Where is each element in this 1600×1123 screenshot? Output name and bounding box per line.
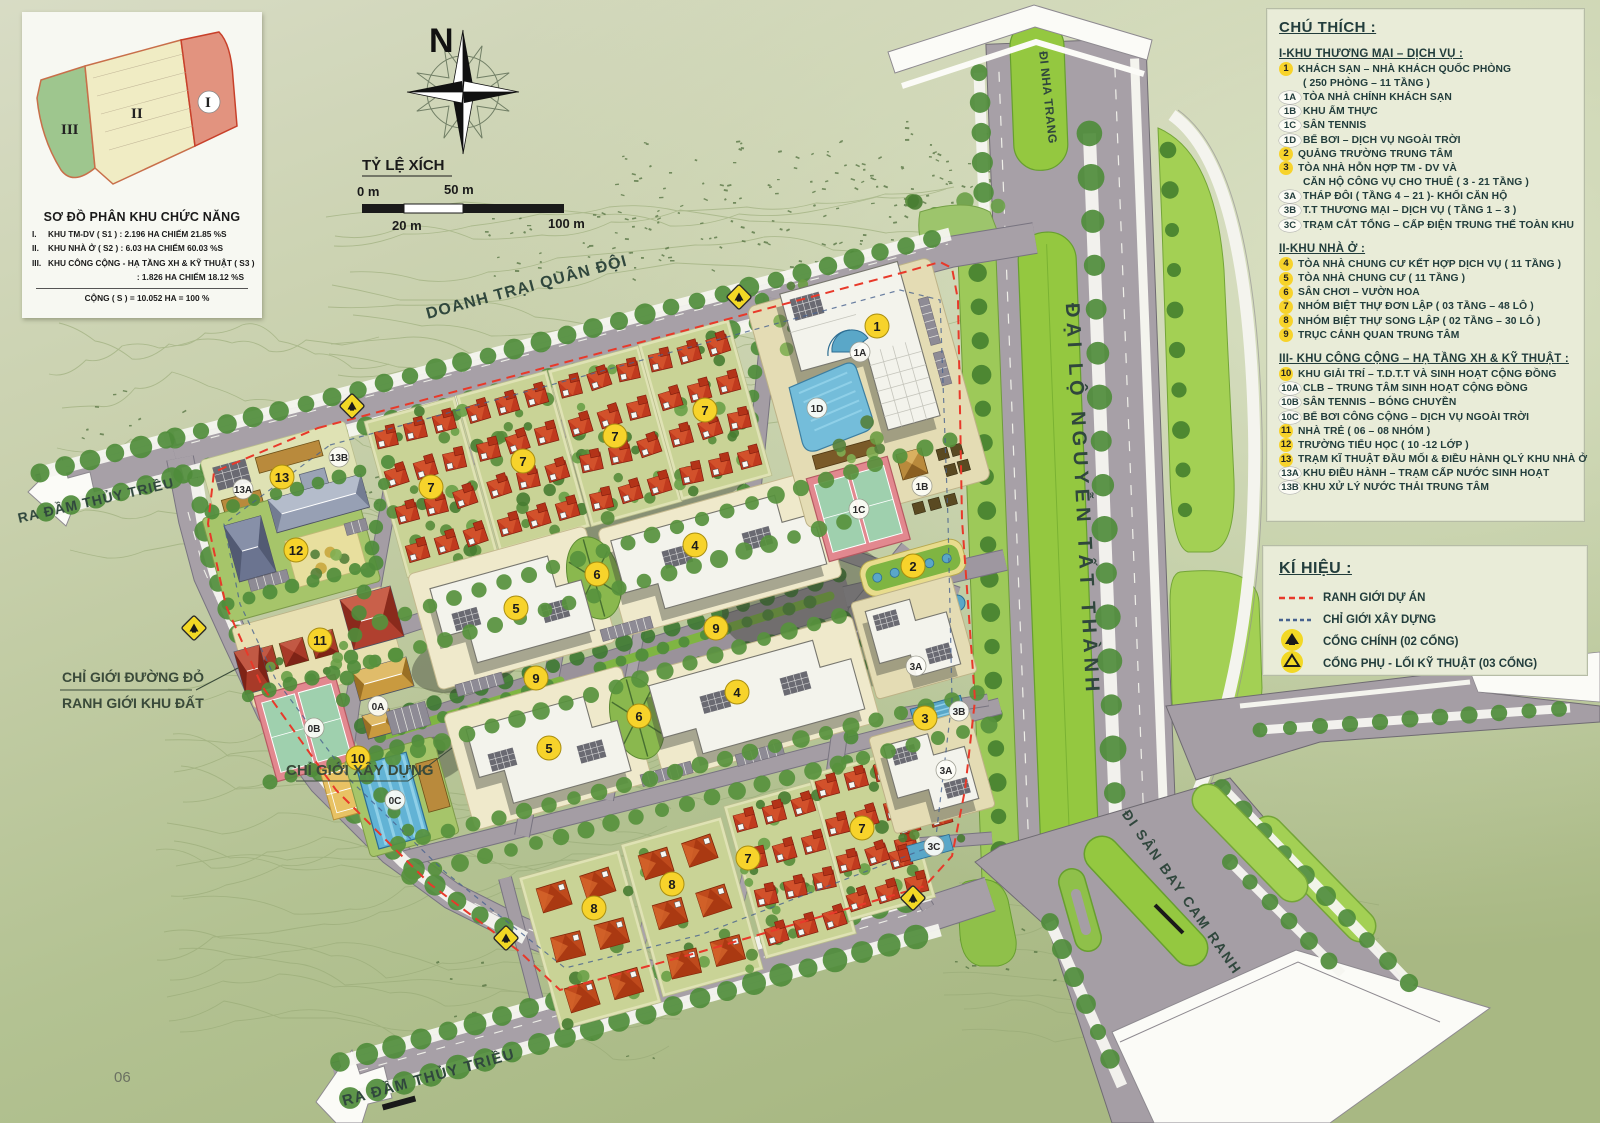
svg-text:CHỈ GIỚI XÂY DỰNG: CHỈ GIỚI XÂY DỰNG <box>286 761 433 779</box>
svg-text:4: 4 <box>733 685 741 700</box>
svg-text:TỶ LỆ XÍCH: TỶ LỆ XÍCH <box>362 156 445 174</box>
svg-text:3: 3 <box>921 711 928 726</box>
svg-text:0C: 0C <box>389 796 402 807</box>
svg-text:100 m: 100 m <box>548 216 585 231</box>
svg-text:5: 5 <box>545 741 552 756</box>
svg-text:RANH GIỚI KHU ĐẤT: RANH GIỚI KHU ĐẤT <box>62 694 204 711</box>
svg-text:III: III <box>61 122 79 138</box>
svg-text:II: II <box>131 106 143 122</box>
svg-text:8: 8 <box>590 901 597 916</box>
svg-text:1D: 1D <box>811 404 824 415</box>
svg-text:50 m: 50 m <box>444 182 474 197</box>
svg-text:1B: 1B <box>916 482 929 493</box>
svg-text:7: 7 <box>427 480 434 495</box>
svg-text:0 m: 0 m <box>357 184 379 199</box>
svg-text:06: 06 <box>114 1069 131 1086</box>
svg-text:7: 7 <box>611 429 618 444</box>
svg-text:I: I <box>205 95 211 111</box>
svg-text:13A: 13A <box>234 485 252 496</box>
svg-text:13B: 13B <box>330 453 348 464</box>
svg-text:3A: 3A <box>940 766 953 777</box>
svg-text:7: 7 <box>744 851 751 866</box>
svg-text:N: N <box>429 22 454 60</box>
svg-text:1: 1 <box>873 319 880 334</box>
svg-text:11: 11 <box>313 633 327 648</box>
svg-text:0A: 0A <box>372 702 385 713</box>
svg-text:CHỈ GIỚI ĐƯỜNG ĐỎ: CHỈ GIỚI ĐƯỜNG ĐỎ <box>62 668 204 685</box>
svg-text:0B: 0B <box>308 724 321 735</box>
svg-text:8: 8 <box>668 877 675 892</box>
svg-text:2: 2 <box>909 559 916 574</box>
svg-text:3C: 3C <box>928 842 941 853</box>
svg-text:9: 9 <box>532 671 539 686</box>
svg-text:20 m: 20 m <box>392 218 422 233</box>
svg-text:3B: 3B <box>953 707 966 718</box>
svg-text:1A: 1A <box>854 348 867 359</box>
svg-text:6: 6 <box>635 709 642 724</box>
svg-text:12: 12 <box>289 543 303 558</box>
svg-text:6: 6 <box>593 567 600 582</box>
svg-text:9: 9 <box>712 621 719 636</box>
svg-text:7: 7 <box>701 403 708 418</box>
svg-text:5: 5 <box>512 601 519 616</box>
svg-text:1C: 1C <box>853 505 866 516</box>
svg-text:3A: 3A <box>910 662 923 673</box>
svg-text:7: 7 <box>858 821 865 836</box>
svg-text:4: 4 <box>691 538 699 553</box>
svg-text:13: 13 <box>275 470 289 485</box>
svg-text:7: 7 <box>519 454 526 469</box>
